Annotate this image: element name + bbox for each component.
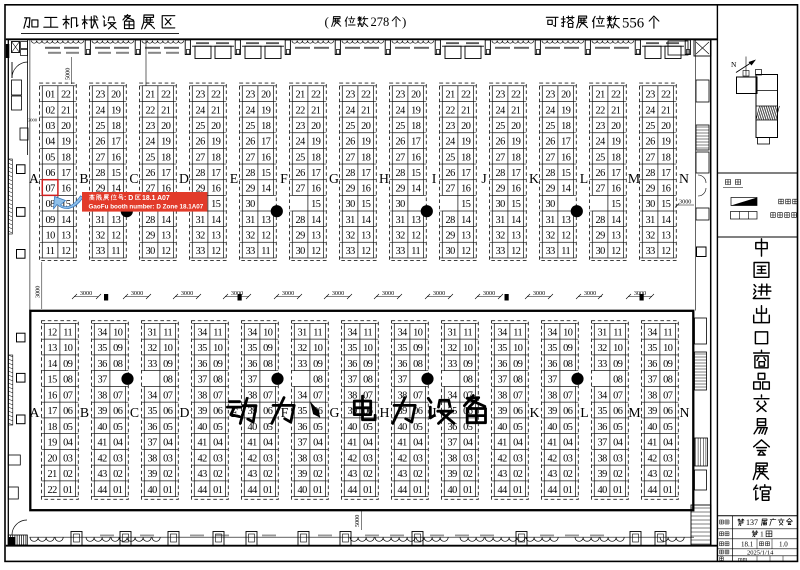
svg-text:23: 23: [445, 121, 455, 132]
svg-text:40: 40: [547, 422, 557, 433]
svg-text:24: 24: [245, 105, 255, 116]
svg-text:21: 21: [145, 90, 155, 101]
svg-text:07: 07: [413, 390, 423, 401]
svg-text:44: 44: [97, 485, 107, 496]
svg-text:38: 38: [147, 453, 157, 464]
svg-text:K: K: [530, 405, 540, 420]
svg-text:37: 37: [397, 375, 407, 386]
svg-text:33: 33: [345, 246, 355, 257]
svg-text:31: 31: [95, 215, 105, 226]
svg-text:19: 19: [661, 137, 671, 148]
svg-text:10: 10: [113, 327, 123, 338]
svg-text:24: 24: [195, 105, 205, 116]
svg-text:31: 31: [495, 215, 505, 226]
svg-text:15: 15: [111, 168, 121, 179]
svg-text:22: 22: [611, 90, 621, 101]
svg-text:N: N: [679, 171, 689, 186]
svg-text:25: 25: [95, 121, 105, 132]
svg-text:08: 08: [363, 375, 373, 386]
svg-text:27: 27: [245, 152, 255, 163]
svg-text:19: 19: [461, 137, 471, 148]
svg-text:28: 28: [545, 168, 555, 179]
svg-text:L: L: [580, 405, 588, 420]
svg-text:28: 28: [595, 215, 605, 226]
svg-text:25: 25: [545, 121, 555, 132]
svg-text:03: 03: [363, 453, 373, 464]
svg-text:42: 42: [647, 453, 657, 464]
svg-text:13: 13: [461, 231, 471, 242]
svg-text:14: 14: [211, 215, 221, 226]
svg-text:22: 22: [461, 90, 471, 101]
svg-text:31: 31: [195, 215, 205, 226]
svg-text:23: 23: [295, 121, 305, 132]
svg-text:12: 12: [511, 246, 521, 257]
svg-text:08: 08: [113, 359, 123, 370]
svg-text:28: 28: [195, 168, 205, 179]
svg-text:29: 29: [545, 184, 555, 195]
svg-text:01: 01: [513, 485, 523, 496]
svg-text:30: 30: [595, 246, 605, 257]
svg-text:05: 05: [163, 422, 173, 433]
svg-text:21: 21: [611, 105, 621, 116]
svg-text:01: 01: [413, 485, 423, 496]
svg-text:03: 03: [613, 453, 623, 464]
svg-text:06: 06: [663, 406, 673, 417]
svg-text:37: 37: [547, 375, 557, 386]
svg-text:27: 27: [495, 152, 505, 163]
svg-text:17: 17: [61, 168, 71, 179]
svg-text:04: 04: [263, 438, 273, 449]
svg-text:22: 22: [61, 90, 71, 101]
svg-text:21: 21: [361, 105, 371, 116]
svg-text:14: 14: [511, 215, 521, 226]
svg-text:E: E: [230, 171, 238, 186]
svg-text:21: 21: [461, 105, 471, 116]
svg-text:22: 22: [311, 90, 321, 101]
svg-text:37: 37: [297, 438, 307, 449]
svg-text:02: 02: [663, 469, 673, 480]
svg-text:28: 28: [445, 215, 455, 226]
svg-text:06: 06: [563, 406, 573, 417]
svg-text:20: 20: [61, 121, 71, 132]
svg-text:34: 34: [297, 390, 307, 401]
svg-text:08: 08: [263, 359, 273, 370]
svg-text:35: 35: [497, 343, 507, 354]
svg-text:35: 35: [597, 406, 607, 417]
svg-text:36: 36: [247, 359, 257, 370]
svg-text:03: 03: [63, 453, 73, 464]
svg-text:30: 30: [245, 199, 255, 210]
svg-text:03: 03: [45, 121, 55, 132]
svg-text:26: 26: [295, 168, 305, 179]
svg-text:02: 02: [563, 469, 573, 480]
svg-text:27: 27: [395, 152, 405, 163]
svg-text:42: 42: [97, 453, 107, 464]
svg-text:04: 04: [163, 438, 173, 449]
svg-text:3000: 3000: [433, 290, 445, 297]
svg-text:09: 09: [63, 359, 73, 370]
svg-text:11: 11: [111, 246, 120, 257]
svg-text:21: 21: [295, 90, 305, 101]
svg-text:16: 16: [611, 184, 621, 195]
svg-text:25: 25: [145, 152, 155, 163]
svg-text:20: 20: [361, 121, 371, 132]
svg-text:31: 31: [645, 215, 655, 226]
svg-text:10: 10: [563, 327, 573, 338]
svg-text:15: 15: [561, 168, 571, 179]
svg-text:37: 37: [197, 375, 207, 386]
svg-text:04: 04: [563, 438, 573, 449]
svg-text:09: 09: [613, 359, 623, 370]
svg-text:20: 20: [211, 121, 221, 132]
svg-text:25: 25: [445, 152, 455, 163]
svg-text:29: 29: [395, 184, 405, 195]
svg-text:44: 44: [247, 485, 257, 496]
svg-text:09: 09: [313, 359, 323, 370]
svg-text:04: 04: [63, 438, 73, 449]
svg-text:25: 25: [245, 121, 255, 132]
svg-text:04: 04: [613, 438, 623, 449]
svg-text:02: 02: [213, 469, 223, 480]
svg-text:43: 43: [547, 469, 557, 480]
svg-text:13: 13: [561, 215, 571, 226]
svg-text:18: 18: [161, 152, 171, 163]
svg-text:14: 14: [61, 215, 71, 226]
svg-text:30: 30: [545, 199, 555, 210]
svg-text:): ): [402, 14, 406, 29]
svg-text:08: 08: [213, 375, 223, 386]
svg-text:41: 41: [97, 438, 107, 449]
svg-text:18: 18: [611, 152, 621, 163]
svg-text:19: 19: [161, 137, 171, 148]
svg-text:31: 31: [147, 327, 157, 338]
svg-text:32: 32: [345, 231, 355, 242]
svg-text:02: 02: [63, 469, 73, 480]
svg-text:11: 11: [63, 327, 72, 338]
svg-text:25: 25: [495, 121, 505, 132]
svg-text:22: 22: [47, 485, 57, 496]
svg-text:17: 17: [211, 168, 221, 179]
svg-text:13: 13: [661, 231, 671, 242]
svg-text:07: 07: [45, 184, 55, 195]
svg-text:A: A: [29, 171, 39, 186]
svg-text:27: 27: [295, 184, 305, 195]
svg-text:39: 39: [147, 469, 157, 480]
svg-text:04: 04: [413, 438, 423, 449]
svg-text:15: 15: [511, 199, 521, 210]
svg-text:31: 31: [345, 215, 355, 226]
svg-text:19: 19: [611, 137, 621, 148]
svg-text:12: 12: [411, 231, 421, 242]
svg-text:24: 24: [395, 105, 405, 116]
svg-text:24: 24: [645, 105, 655, 116]
svg-text:19: 19: [211, 137, 221, 148]
svg-text:33: 33: [245, 246, 255, 257]
svg-text:18: 18: [261, 121, 271, 132]
svg-text:15: 15: [461, 199, 471, 210]
svg-text:32: 32: [645, 231, 655, 242]
svg-text:I: I: [432, 171, 437, 186]
svg-text:12: 12: [311, 246, 321, 257]
svg-text:08: 08: [313, 375, 323, 386]
svg-text:35: 35: [247, 343, 257, 354]
svg-text:01: 01: [313, 485, 323, 496]
svg-text:03: 03: [213, 453, 223, 464]
svg-text:36: 36: [97, 359, 107, 370]
svg-text:29: 29: [345, 184, 355, 195]
svg-text:24: 24: [495, 105, 505, 116]
svg-text:37: 37: [447, 438, 457, 449]
svg-text:5000: 5000: [354, 515, 361, 527]
svg-text:35: 35: [147, 406, 157, 417]
svg-text:12: 12: [361, 246, 371, 257]
svg-text:24: 24: [345, 105, 355, 116]
svg-text:34: 34: [647, 327, 657, 338]
svg-text:21: 21: [311, 105, 321, 116]
svg-text:03: 03: [113, 453, 123, 464]
svg-text:10: 10: [213, 343, 223, 354]
svg-text:04: 04: [663, 438, 673, 449]
svg-text:20: 20: [161, 121, 171, 132]
svg-text:38: 38: [97, 390, 107, 401]
svg-text:5000: 5000: [65, 68, 72, 80]
svg-text:40: 40: [347, 422, 357, 433]
svg-text:F: F: [280, 171, 288, 186]
svg-text:26: 26: [95, 137, 105, 148]
svg-text:25: 25: [195, 121, 205, 132]
svg-text:18: 18: [361, 152, 371, 163]
svg-text:mm: mm: [738, 557, 748, 563]
svg-text:10: 10: [463, 343, 473, 354]
svg-text:3000: 3000: [382, 290, 394, 297]
svg-text:41: 41: [647, 438, 657, 449]
svg-text:07: 07: [263, 390, 273, 401]
svg-text:33: 33: [195, 246, 205, 257]
svg-text:15: 15: [361, 199, 371, 210]
svg-text:17: 17: [47, 406, 57, 417]
svg-text:14: 14: [161, 215, 171, 226]
svg-text:39: 39: [547, 406, 557, 417]
svg-text:19: 19: [61, 137, 71, 148]
svg-text:42: 42: [247, 453, 257, 464]
svg-text:15: 15: [211, 199, 221, 210]
svg-text:43: 43: [497, 469, 507, 480]
svg-text:10: 10: [263, 327, 273, 338]
svg-text:18.1: 18.1: [741, 540, 754, 548]
svg-text:27: 27: [545, 152, 555, 163]
svg-text:31: 31: [395, 215, 405, 226]
svg-text:18: 18: [61, 152, 71, 163]
svg-text:27: 27: [595, 184, 605, 195]
svg-text:14: 14: [561, 184, 571, 195]
svg-text:28: 28: [395, 168, 405, 179]
svg-text:02: 02: [363, 469, 373, 480]
svg-text:28: 28: [95, 168, 105, 179]
svg-text:28: 28: [495, 168, 505, 179]
svg-text:31: 31: [297, 327, 307, 338]
svg-text:3000: 3000: [483, 290, 495, 297]
svg-text:40: 40: [297, 485, 307, 496]
svg-text:12: 12: [61, 246, 71, 257]
svg-text:18: 18: [47, 422, 57, 433]
svg-text:29: 29: [245, 184, 255, 195]
svg-text:13: 13: [361, 231, 371, 242]
svg-text:31: 31: [447, 327, 457, 338]
svg-text:41: 41: [347, 438, 357, 449]
svg-text:20: 20: [461, 121, 471, 132]
svg-text:29: 29: [145, 231, 155, 242]
svg-text:25: 25: [395, 121, 405, 132]
svg-text:33: 33: [297, 359, 307, 370]
svg-text:02: 02: [163, 469, 173, 480]
svg-text:18: 18: [411, 121, 421, 132]
svg-text:K: K: [529, 171, 539, 186]
svg-text:20: 20: [47, 453, 57, 464]
svg-text:02: 02: [313, 469, 323, 480]
svg-text:02: 02: [413, 469, 423, 480]
svg-text:24: 24: [95, 105, 105, 116]
svg-text:11: 11: [463, 327, 472, 338]
svg-text:3000: 3000: [533, 290, 545, 297]
svg-text:13: 13: [611, 231, 621, 242]
svg-text:10: 10: [163, 343, 173, 354]
svg-text:44: 44: [347, 485, 357, 496]
svg-text:06: 06: [613, 406, 623, 417]
svg-text:33: 33: [447, 359, 457, 370]
svg-text:G: G: [330, 405, 340, 420]
svg-text:39: 39: [97, 406, 107, 417]
svg-text:19: 19: [47, 438, 57, 449]
svg-text:18: 18: [311, 152, 321, 163]
svg-text:17: 17: [161, 168, 171, 179]
svg-text:27: 27: [645, 152, 655, 163]
svg-text:21: 21: [61, 105, 71, 116]
svg-text:33: 33: [95, 246, 105, 257]
svg-text:02: 02: [513, 469, 523, 480]
svg-text:09: 09: [113, 343, 123, 354]
svg-text:17: 17: [611, 168, 621, 179]
svg-text:3000: 3000: [35, 286, 42, 298]
svg-text:35: 35: [347, 343, 357, 354]
svg-text:10: 10: [63, 343, 73, 354]
svg-text:N: N: [680, 405, 690, 420]
svg-text:09: 09: [413, 343, 423, 354]
svg-text:16: 16: [661, 184, 671, 195]
svg-text:08: 08: [663, 375, 673, 386]
svg-text:40: 40: [147, 485, 157, 496]
svg-text:21: 21: [445, 90, 455, 101]
svg-text:44: 44: [647, 485, 657, 496]
svg-text:06: 06: [113, 406, 123, 417]
svg-text:3000: 3000: [28, 118, 38, 123]
svg-text:34: 34: [97, 327, 107, 338]
svg-text:29: 29: [495, 184, 505, 195]
svg-text:18: 18: [511, 152, 521, 163]
svg-text:26: 26: [645, 137, 655, 148]
svg-text:16: 16: [311, 184, 321, 195]
svg-text:11: 11: [663, 327, 672, 338]
svg-text:26: 26: [245, 137, 255, 148]
svg-text:31: 31: [245, 215, 255, 226]
svg-text:10: 10: [613, 343, 623, 354]
svg-text:07: 07: [563, 390, 573, 401]
svg-text:03: 03: [563, 453, 573, 464]
svg-text:34: 34: [197, 327, 207, 338]
svg-text:03: 03: [263, 453, 273, 464]
svg-text:19: 19: [111, 105, 121, 116]
svg-text:36: 36: [147, 422, 157, 433]
svg-text:44: 44: [397, 485, 407, 496]
svg-text:24: 24: [295, 137, 305, 148]
svg-text:B: B: [79, 171, 88, 186]
svg-text:32: 32: [545, 231, 555, 242]
svg-text:03: 03: [413, 453, 423, 464]
svg-text:23: 23: [95, 90, 105, 101]
svg-text:H: H: [379, 171, 389, 186]
svg-text:M: M: [628, 171, 640, 186]
svg-text:03: 03: [663, 453, 673, 464]
svg-text:30: 30: [445, 246, 455, 257]
svg-text:01: 01: [163, 485, 173, 496]
svg-text:09: 09: [463, 359, 473, 370]
svg-text:08: 08: [563, 359, 573, 370]
svg-text:33: 33: [645, 246, 655, 257]
svg-text:14: 14: [311, 215, 321, 226]
svg-text:11: 11: [46, 246, 55, 257]
svg-text:37: 37: [97, 375, 107, 386]
svg-text:15: 15: [661, 199, 671, 210]
svg-text:39: 39: [197, 406, 207, 417]
svg-text:34: 34: [497, 327, 507, 338]
svg-text:28: 28: [245, 168, 255, 179]
svg-text:32: 32: [195, 231, 205, 242]
svg-text:3000: 3000: [181, 290, 193, 297]
svg-text:36: 36: [597, 422, 607, 433]
svg-text:14: 14: [611, 215, 621, 226]
svg-text:13: 13: [411, 215, 421, 226]
svg-text:04: 04: [313, 438, 323, 449]
svg-text:09: 09: [663, 359, 673, 370]
svg-text:38: 38: [597, 453, 607, 464]
svg-text:17: 17: [261, 137, 271, 148]
svg-text:41: 41: [497, 438, 507, 449]
svg-text:17: 17: [311, 168, 321, 179]
svg-text:3000: 3000: [282, 290, 294, 297]
svg-text:41: 41: [397, 438, 407, 449]
svg-text:19: 19: [311, 137, 321, 148]
svg-text:26: 26: [145, 168, 155, 179]
svg-text:22: 22: [511, 90, 521, 101]
svg-text:32: 32: [597, 343, 607, 354]
svg-text:14: 14: [361, 215, 371, 226]
svg-text:12: 12: [611, 246, 621, 257]
svg-text:02: 02: [113, 469, 123, 480]
svg-text:08: 08: [63, 375, 73, 386]
svg-text:GaoFu booth number: D Zone 18.: GaoFu booth number: D Zone 18.1A07: [89, 204, 204, 211]
svg-text:08: 08: [513, 375, 523, 386]
svg-text:06: 06: [63, 406, 73, 417]
svg-text:32: 32: [95, 231, 105, 242]
svg-text:16: 16: [61, 184, 71, 195]
svg-text:33: 33: [495, 246, 505, 257]
svg-text:11: 11: [613, 327, 622, 338]
svg-text:29: 29: [445, 231, 455, 242]
svg-text:43: 43: [197, 469, 207, 480]
svg-text:42: 42: [547, 453, 557, 464]
svg-text:14: 14: [47, 359, 57, 370]
svg-text:09: 09: [363, 359, 373, 370]
svg-text:20: 20: [611, 121, 621, 132]
